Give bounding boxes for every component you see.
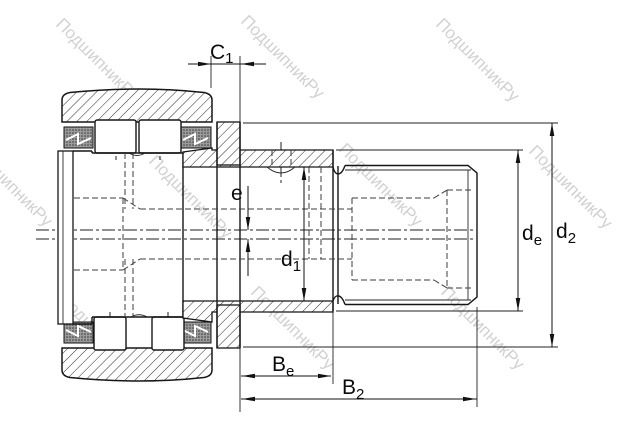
technical-drawing-canvas: ПодшипникРу ПодшипникРу ПодшипникРу Подш…	[0, 0, 624, 444]
watermark-text: ПодшипникРу	[432, 14, 523, 105]
thread-runout-top	[333, 166, 345, 174]
watermark-text: ПодшипникРу	[525, 141, 616, 232]
watermark-text: ПодшипникРу	[437, 282, 528, 373]
roller	[94, 317, 126, 350]
dimension-c1: C1	[188, 41, 266, 67]
dimension-label-e: e	[231, 182, 243, 205]
bushing-bottom-band	[183, 301, 333, 322]
dimension-de: de	[516, 150, 542, 311]
dimension-label-c1: C1	[210, 41, 234, 67]
dimension-label-be: Be	[272, 353, 294, 380]
needle-rollers	[94, 120, 184, 350]
thread-outline	[345, 166, 477, 305]
end-washer-plate	[58, 151, 73, 324]
watermark-text: ПодшипникРу	[237, 11, 328, 102]
dimension-label-d1: d1	[281, 248, 301, 275]
watermark-text: ПодшипникРу	[247, 282, 338, 373]
watermark-text: ПодшипникРу	[0, 139, 57, 230]
outer-ring-bottom-section	[62, 348, 212, 381]
outer-ring-top-section	[62, 89, 212, 122]
collar-top-section	[217, 122, 240, 165]
roller	[152, 317, 184, 350]
thread-runout-bottom	[333, 296, 345, 305]
dimension-label-b2: B2	[342, 376, 364, 403]
hidden-lines	[74, 153, 471, 317]
cam-follower-drawing: ПодшипникРу ПодшипникРу ПодшипникРу Подш…	[0, 0, 624, 444]
end-washer	[58, 151, 73, 324]
collar-bottom-section	[217, 305, 240, 348]
dimension-label-de: de	[522, 222, 542, 249]
threaded-stud	[333, 166, 477, 305]
roller	[95, 120, 136, 153]
watermark-text: ПодшипникРу	[335, 139, 426, 230]
dimension-b2: B2	[241, 376, 477, 403]
dimension-d1: d1	[281, 167, 306, 301]
roller	[139, 120, 181, 153]
bushing-top-band	[183, 148, 333, 167]
dimension-label-d2: d2	[556, 220, 576, 247]
